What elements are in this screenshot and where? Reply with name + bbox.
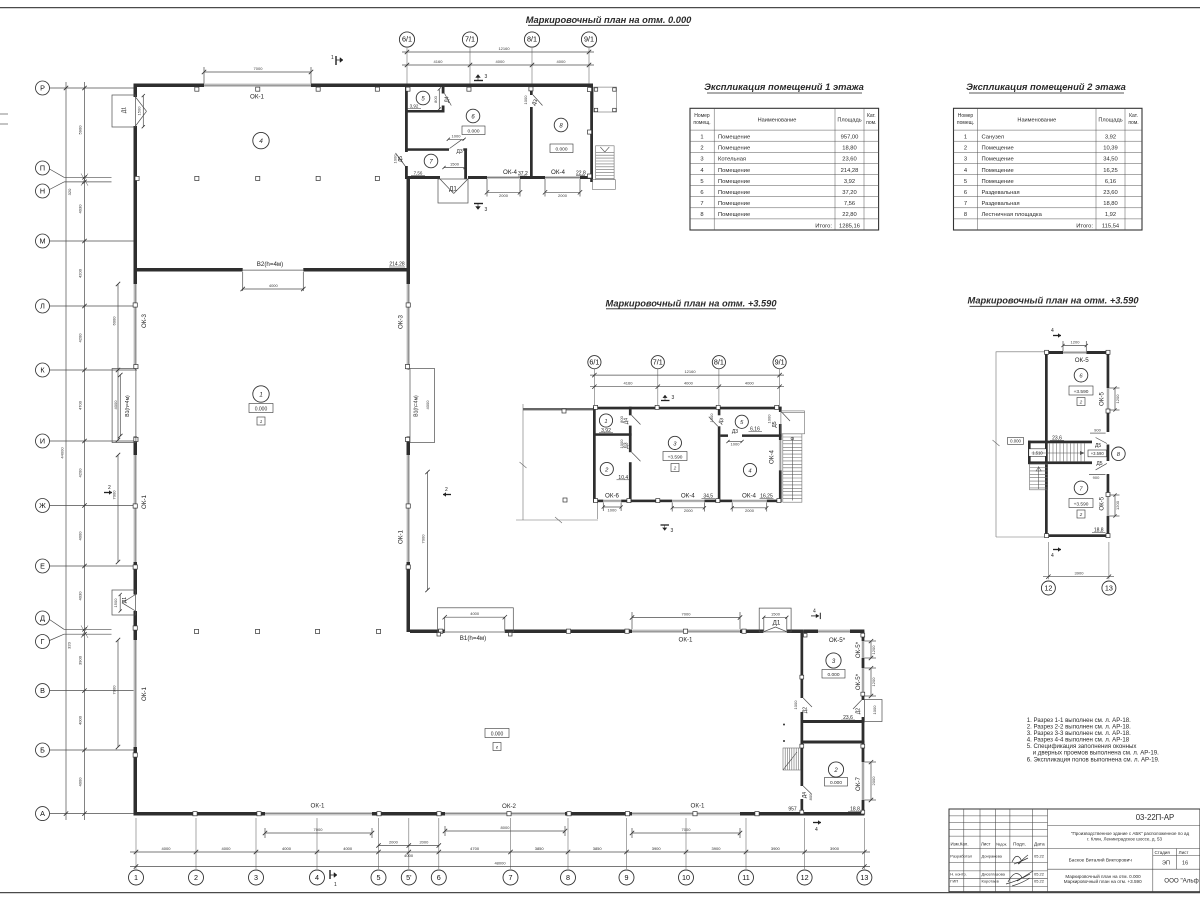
svg-text:8: 8 [700,212,703,218]
svg-text:7/1: 7/1 [653,357,663,366]
svg-text:Д2: Д2 [803,707,809,713]
svg-text:Д3: Д3 [457,149,463,155]
svg-text:4000: 4000 [78,777,83,787]
svg-text:4160: 4160 [624,381,634,386]
svg-text:Помещение: Помещение [718,179,750,185]
svg-text:1000: 1000 [393,154,398,164]
svg-text:4: 4 [748,468,751,474]
svg-text:03-22П-АР: 03-22П-АР [1136,813,1175,822]
svg-text:05.22: 05.22 [1034,871,1045,876]
svg-text:2: 2 [700,146,703,152]
svg-text:18,80: 18,80 [842,146,857,152]
svg-text:Маркировочный план на отм. +3.: Маркировочный план на отм. +3.590 [1064,878,1142,884]
svg-text:В1(h=4м): В1(h=4м) [414,395,420,417]
svg-text:5900: 5900 [78,125,83,135]
svg-text:ОК-2: ОК-2 [502,803,516,810]
svg-text:Коротаев: Коротаев [982,879,999,884]
svg-text:3,92: 3,92 [844,179,855,185]
svg-text:В1(h=4м): В1(h=4м) [460,635,486,642]
svg-text:ОК-5: ОК-5 [1098,391,1105,405]
svg-text:Наименование: Наименование [758,118,797,124]
svg-text:Д1: Д1 [449,186,457,193]
svg-text:1000: 1000 [452,133,462,138]
svg-text:44000: 44000 [60,447,65,459]
svg-text:957: 957 [788,807,797,813]
svg-text:В2(h=4м): В2(h=4м) [257,261,283,268]
svg-text:4000: 4000 [269,283,279,288]
svg-text:ОК-1: ОК-1 [141,494,148,508]
svg-text:помещ.: помещ. [957,120,974,126]
svg-text:Н. контр.: Н. контр. [950,871,967,876]
svg-text:0.000: 0.000 [467,129,479,135]
svg-text:4: 4 [1051,553,1054,559]
svg-text:1500: 1500 [113,598,118,608]
svg-text:ОК-4: ОК-4 [742,492,756,499]
svg-text:6. Экспликация полов выполнена: 6. Экспликация полов выполнена см. л. АР… [1027,756,1160,763]
svg-text:6: 6 [437,873,441,882]
svg-text:1500: 1500 [450,162,460,167]
svg-text:2: 2 [1079,400,1083,405]
svg-text:6: 6 [700,190,703,196]
svg-text:1000: 1000 [731,442,741,447]
svg-text:4000: 4000 [113,400,118,410]
svg-text:Н: Н [40,187,45,196]
svg-text:3900: 3900 [1075,571,1085,576]
svg-text:3,92: 3,92 [410,104,419,109]
svg-text:ОК-7: ОК-7 [855,776,862,790]
svg-text:ОК-1: ОК-1 [141,686,148,700]
svg-text:+3.590: +3.590 [1091,451,1105,456]
svg-text:Б: Б [40,746,45,755]
svg-text:Лестничная площадка: Лестничная площадка [982,212,1043,218]
svg-text:Д5: Д5 [1095,443,1101,449]
svg-text:1000: 1000 [523,95,528,105]
svg-text:800: 800 [619,415,624,422]
svg-text:ОК-3: ОК-3 [398,314,405,328]
svg-text:пом.: пом. [866,120,876,126]
svg-text:4200: 4200 [78,468,83,478]
svg-text:ОК-6: ОК-6 [605,492,619,499]
svg-text:0.000: 0.000 [555,147,567,153]
svg-text:115,54: 115,54 [1102,223,1120,229]
svg-text:4: 4 [259,138,263,145]
svg-text:ОК-5*: ОК-5* [855,673,862,690]
svg-text:ОК-5*: ОК-5* [855,641,862,658]
svg-text:3,92: 3,92 [1105,135,1116,141]
svg-text:3900: 3900 [652,846,662,851]
svg-text:Л: Л [40,302,45,311]
svg-text:1200: 1200 [871,645,876,655]
svg-text:9/1: 9/1 [775,357,785,366]
svg-text:4200: 4200 [78,268,83,278]
svg-text:Изм.Кол.: Изм.Кол. [951,841,969,846]
svg-text:7000: 7000 [112,490,117,500]
svg-text:ОК-4: ОК-4 [681,492,695,499]
svg-text:2: 2 [673,466,677,471]
svg-text:4000: 4000 [222,846,232,851]
svg-text:Наименование: Наименование [1017,118,1056,124]
svg-text:2: 2 [1079,512,1083,517]
svg-text:7000: 7000 [112,685,117,695]
svg-text:5: 5 [377,873,381,882]
svg-text:3850: 3850 [535,846,545,851]
svg-text:5: 5 [964,179,967,185]
svg-text:8/1: 8/1 [714,357,724,366]
svg-text:0.000: 0.000 [255,406,268,412]
svg-text:Доиранева: Доиранева [982,854,1003,859]
svg-text:Раздевальная: Раздевальная [982,190,1020,196]
svg-text:Маркировочный план на отм. 0.0: Маркировочный план на отм. 0.000 [526,15,692,25]
svg-text:1: 1 [259,392,263,399]
svg-text:4000: 4000 [745,381,755,386]
svg-text:48000: 48000 [494,861,506,866]
svg-text:И: И [40,437,45,446]
svg-text:2: 2 [445,487,448,493]
svg-text:Помещение: Помещение [982,146,1014,152]
svg-text:П: П [40,164,45,173]
svg-text:ОК-4: ОК-4 [551,169,565,176]
svg-text:Площадь: Площадь [1098,118,1122,124]
svg-text:3900: 3900 [771,846,781,851]
svg-text:3: 3 [672,395,675,401]
svg-text:Лист: Лист [1179,850,1189,855]
svg-text:Стадия: Стадия [1155,850,1171,855]
svg-text:4000: 4000 [425,400,430,410]
svg-text:Раздевальная: Раздевальная [982,201,1020,207]
svg-text:Помещение: Помещение [982,168,1014,174]
svg-text:+3.590: +3.590 [1074,389,1089,395]
svg-text:800: 800 [433,95,438,102]
svg-text:2: 2 [833,768,838,774]
svg-text:12: 12 [1044,584,1052,593]
svg-text:7000: 7000 [254,66,264,71]
svg-text:Помещение: Помещение [982,179,1014,185]
svg-text:22,80: 22,80 [842,212,857,218]
svg-text:7000: 7000 [682,827,692,832]
svg-text:Д2: Д2 [856,708,862,714]
svg-text:6/1: 6/1 [589,357,599,366]
svg-text:4000: 4000 [684,381,694,386]
svg-text:ОК-5: ОК-5 [1098,496,1105,510]
svg-text:13: 13 [1105,584,1113,593]
svg-text:Ж: Ж [39,501,46,510]
svg-text:Помещение: Помещение [718,146,750,152]
svg-text:4030: 4030 [78,591,83,601]
svg-text:1000: 1000 [767,414,772,424]
svg-text:М: М [40,237,46,246]
svg-text:3900: 3900 [712,846,722,851]
svg-text:1000: 1000 [608,507,618,512]
svg-text:16: 16 [1182,860,1188,866]
svg-text:0.000: 0.000 [830,780,842,786]
svg-text:ОК-5: ОК-5 [1075,357,1089,364]
svg-text:ГИП: ГИП [950,879,958,884]
svg-text:Р: Р [40,84,45,93]
svg-text:Помещение: Помещение [718,168,750,174]
svg-text:23,6: 23,6 [1052,436,1062,442]
svg-text:В1(h=4м): В1(h=4м) [125,395,131,417]
svg-text:10: 10 [682,873,690,882]
svg-text:23,60: 23,60 [842,157,857,163]
svg-text:Маркировочный план на отм. +3.: Маркировочный план на отм. +3.590 [967,296,1139,306]
svg-text:214,28: 214,28 [841,168,859,174]
svg-text:Экспликация помещений 1 этажа: Экспликация помещений 1 этажа [704,81,864,92]
svg-text:1200: 1200 [1115,394,1120,404]
svg-text:помещ.: помещ. [693,120,710,126]
svg-text:4000: 4000 [470,611,480,616]
svg-text:7: 7 [509,873,513,882]
svg-text:Итого:: Итого: [815,223,832,229]
svg-text:5: 5 [700,179,703,185]
svg-text:3: 3 [671,528,674,534]
svg-text:4160: 4160 [434,59,444,64]
svg-text:Е: Е [40,562,45,571]
svg-text:900: 900 [1094,428,1101,433]
svg-text:1: 1 [700,135,703,141]
svg-text:Помещение: Помещение [982,157,1014,163]
svg-text:6000: 6000 [112,316,117,326]
svg-text:ОК-1: ОК-1 [311,803,325,810]
svg-text:Дата: Дата [1034,841,1045,847]
svg-text:ОК-1: ОК-1 [398,529,405,543]
svg-text:4000: 4000 [343,846,353,851]
svg-text:ЭП: ЭП [1162,860,1170,866]
svg-text:7000: 7000 [421,534,426,544]
svg-text:18,80: 18,80 [1103,201,1118,207]
svg-text:1000: 1000 [709,413,714,423]
svg-text:6/1: 6/1 [402,35,412,44]
svg-text:1200: 1200 [1115,500,1120,510]
svg-text:214.28: 214.28 [389,262,405,268]
svg-text:1000: 1000 [872,705,877,715]
svg-text:7,56: 7,56 [414,171,423,176]
svg-text:8: 8 [964,212,967,218]
svg-text:7000: 7000 [682,612,692,617]
svg-text:1285,16: 1285,16 [839,223,860,229]
svg-text:Помещение: Помещение [718,135,750,141]
svg-text:Маркировочный план на отм. 0.0: Маркировочный план на отм. 0.000 [1065,873,1141,879]
svg-text:12160: 12160 [498,46,510,51]
svg-text:+3.590: +3.590 [668,454,683,460]
svg-text:957,00: 957,00 [841,135,859,141]
svg-text:Д3: Д3 [624,442,630,448]
svg-text:2000: 2000 [558,193,568,198]
svg-text:Д5: Д5 [772,421,778,427]
svg-text:Д4: Д4 [445,96,451,102]
svg-text:4000: 4000 [557,59,567,64]
svg-text:4000: 4000 [78,715,83,725]
svg-text:Д5: Д5 [398,156,404,162]
svg-text:4700: 4700 [78,400,83,410]
svg-text:Санузел: Санузел [982,135,1005,141]
svg-text:4030: 4030 [78,204,83,214]
svg-text:3: 3 [485,74,488,80]
svg-text:1: 1 [331,55,334,61]
svg-text:23,60: 23,60 [1103,190,1118,196]
svg-text:1000: 1000 [793,700,798,710]
svg-text:В: В [40,686,45,695]
svg-text:9: 9 [625,873,629,882]
svg-text:4000: 4000 [496,59,506,64]
svg-text:ОК-1: ОК-1 [679,637,693,644]
svg-text:12160: 12160 [684,369,696,374]
svg-text:Г: Г [41,637,45,646]
svg-text:+3.590: +3.590 [1074,501,1089,507]
svg-text:2000: 2000 [871,776,876,786]
svg-text:13: 13 [860,873,868,882]
svg-text:Баское Виталий Викторович: Баское Виталий Викторович [1069,857,1133,864]
svg-text:3: 3 [700,157,703,163]
svg-text:0.000: 0.000 [827,672,839,678]
svg-text:Кат.: Кат. [1129,113,1138,119]
svg-text:Д4: Д4 [624,418,630,424]
svg-text:Экспликация помещений 2 этажа: Экспликация помещений 2 этажа [966,81,1126,92]
svg-text:7/1: 7/1 [465,35,475,44]
svg-text:4000: 4000 [404,853,414,858]
svg-text:ООО "Альф: ООО "Альф [1164,877,1198,884]
svg-text:12: 12 [801,873,809,882]
svg-text:320: 320 [67,188,72,195]
svg-text:1200: 1200 [1071,340,1081,345]
svg-text:2000: 2000 [745,508,755,513]
svg-text:1: 1 [134,873,138,882]
svg-text:4: 4 [315,873,319,882]
svg-text:Котельная: Котельная [718,157,746,163]
svg-text:4000: 4000 [282,846,292,851]
svg-text:1: 1 [334,882,337,888]
svg-text:Д: Д [40,614,45,623]
svg-text:2000: 2000 [684,508,694,513]
svg-text:Дисеглазова: Дисеглазова [982,871,1006,876]
svg-text:3: 3 [964,157,967,163]
svg-text:Д1: Д1 [122,107,128,113]
svg-text:2000: 2000 [389,840,399,845]
svg-text:1: 1 [604,419,607,425]
svg-text:900: 900 [1093,475,1100,480]
svg-text:7: 7 [964,201,967,207]
svg-text:пом.: пом. [1128,120,1138,126]
svg-text:11: 11 [742,873,749,882]
svg-text:Лист: Лист [981,841,991,846]
svg-text:7000: 7000 [314,827,324,832]
svg-text:6: 6 [964,190,967,196]
svg-text:Д1: Д1 [773,620,781,627]
svg-text:1: 1 [964,135,967,141]
svg-text:г. Клин, Ленинградское шоссе,: г. Клин, Ленинградское шоссе, д. 53 [1087,837,1162,842]
svg-text:800: 800 [808,793,813,800]
svg-text:ОК-4: ОК-4 [769,449,776,463]
svg-text:3900: 3900 [78,655,83,665]
svg-text:Номер: Номер [694,113,710,119]
svg-text:10,39: 10,39 [1103,146,1118,152]
svg-text:3: 3 [254,873,258,882]
svg-text:А: А [40,809,45,818]
svg-text:1500: 1500 [771,612,781,617]
svg-text:7,56: 7,56 [844,201,855,207]
svg-text:4700: 4700 [470,846,480,851]
svg-text:4000: 4000 [162,846,172,851]
svg-text:8/1: 8/1 [527,35,537,44]
svg-text:№док.: №док. [996,843,1007,847]
svg-text:4: 4 [1051,328,1054,334]
svg-text:4200: 4200 [78,333,83,343]
svg-text:Разработал: Разработал [950,854,972,859]
svg-text:2000: 2000 [499,193,509,198]
svg-text:2000: 2000 [419,840,429,845]
svg-text:Маркировочный план на отм. +3.: Маркировочный план на отм. +3.590 [605,299,777,309]
svg-text:8000: 8000 [501,825,511,830]
svg-text:6,16: 6,16 [1105,179,1116,185]
svg-text:05.22: 05.22 [1034,854,1045,859]
svg-text:3850: 3850 [593,846,603,851]
svg-text:ОК-4: ОК-4 [503,169,517,176]
svg-text:Помещение: Помещение [718,212,750,218]
svg-text:37,20: 37,20 [842,190,857,196]
svg-text:ОК-1: ОК-1 [250,94,264,101]
svg-text:3: 3 [485,207,488,213]
svg-text:Площадь: Площадь [837,118,861,124]
svg-text:16,25: 16,25 [1103,168,1118,174]
svg-text:Итого:: Итого: [1076,223,1093,229]
svg-text:1500: 1500 [137,106,142,116]
svg-text:1200: 1200 [871,677,876,687]
svg-text:34,50: 34,50 [1103,157,1118,163]
svg-text:5': 5' [406,873,412,882]
svg-text:ОК-5*: ОК-5* [829,637,846,644]
svg-text:2: 2 [108,485,111,491]
svg-text:05.22: 05.22 [1034,879,1045,884]
svg-text:0.000: 0.000 [1010,439,1021,444]
svg-text:Помещение: Помещение [718,190,750,196]
svg-text:"Производственное здание с АБК: "Производственное здание с АБК" располож… [1071,831,1190,836]
svg-text:Номер: Номер [958,113,974,119]
svg-text:4: 4 [813,609,816,615]
svg-text:8: 8 [566,873,570,882]
svg-text:Помещение: Помещение [718,201,750,207]
svg-text:9/1: 9/1 [584,35,594,44]
svg-text:ОК-3: ОК-3 [141,313,148,327]
svg-text:3900: 3900 [830,846,840,851]
svg-text:0.000: 0.000 [491,731,504,737]
svg-text:Д1: Д1 [122,597,128,603]
svg-text:Кат.: Кат. [867,113,876,119]
svg-text:2: 2 [964,146,967,152]
svg-text:1,92: 1,92 [1105,212,1116,218]
svg-text:320: 320 [67,641,72,648]
svg-text:2: 2 [194,873,198,882]
svg-text:4: 4 [815,827,818,833]
svg-text:Д3: Д3 [732,429,738,435]
svg-text:4000: 4000 [78,531,83,541]
svg-text:ОК-1: ОК-1 [691,803,705,810]
svg-text:1000: 1000 [619,439,624,449]
svg-text:Подл.: Подл. [1013,841,1026,847]
svg-text:7: 7 [700,201,703,207]
